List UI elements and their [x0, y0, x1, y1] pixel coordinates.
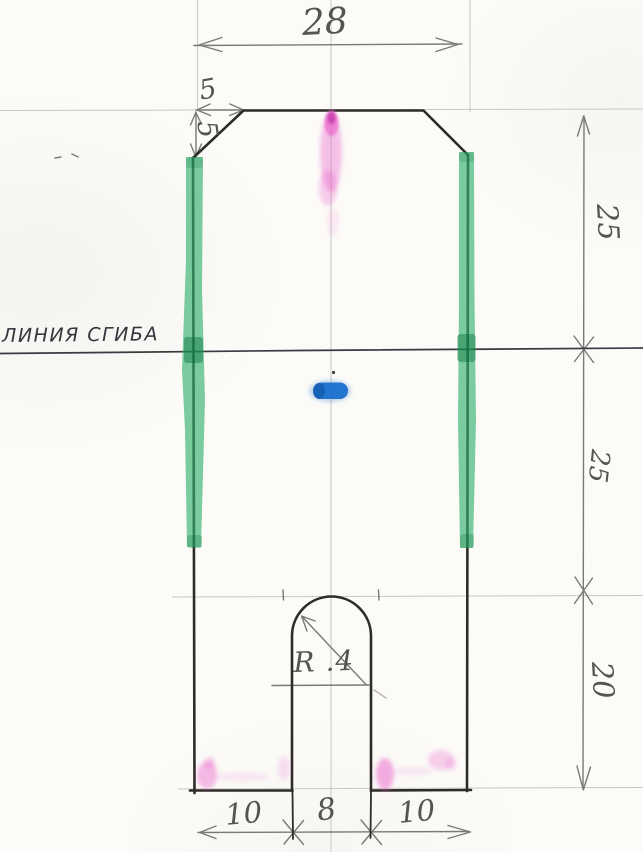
dim-label-bottom-slot-width: 8	[315, 794, 338, 826]
dim-label-top-width: 28	[301, 4, 349, 42]
fold-line	[0, 348, 643, 354]
dim-label-bottom-right-leg: 10	[397, 796, 436, 828]
pencil-dot	[332, 371, 335, 374]
pink-marker-bottom-left	[197, 756, 290, 789]
dim-label-bottom-left-leg: 10	[224, 798, 263, 830]
dim-label-upper-half: 25	[592, 203, 623, 241]
arrow-left-icon	[199, 38, 222, 52]
construction-lines	[0, 0, 643, 852]
dim-label-leg-height: 20	[587, 661, 618, 699]
fold-line-label: ЛИНИЯ СГИБА	[2, 323, 159, 347]
green-highlight-right	[458, 152, 477, 548]
dim-label-lower-half: 25	[584, 448, 613, 484]
pattern-drawing-sheet: 28 5 5 25 25 20 R .4 10 8 10 ЛИНИЯ СГИБА	[0, 0, 643, 852]
drawing-canvas	[0, 0, 643, 852]
arrow-down-icon	[577, 766, 591, 790]
dimension-lines	[191, 38, 594, 845]
pink-marker-bottom-right	[376, 750, 457, 790]
blue-marker-dash	[309, 371, 351, 402]
dim-label-slot-radius: R .4	[293, 647, 355, 677]
pink-marker-top	[319, 110, 342, 236]
green-highlight-left	[182, 157, 205, 548]
